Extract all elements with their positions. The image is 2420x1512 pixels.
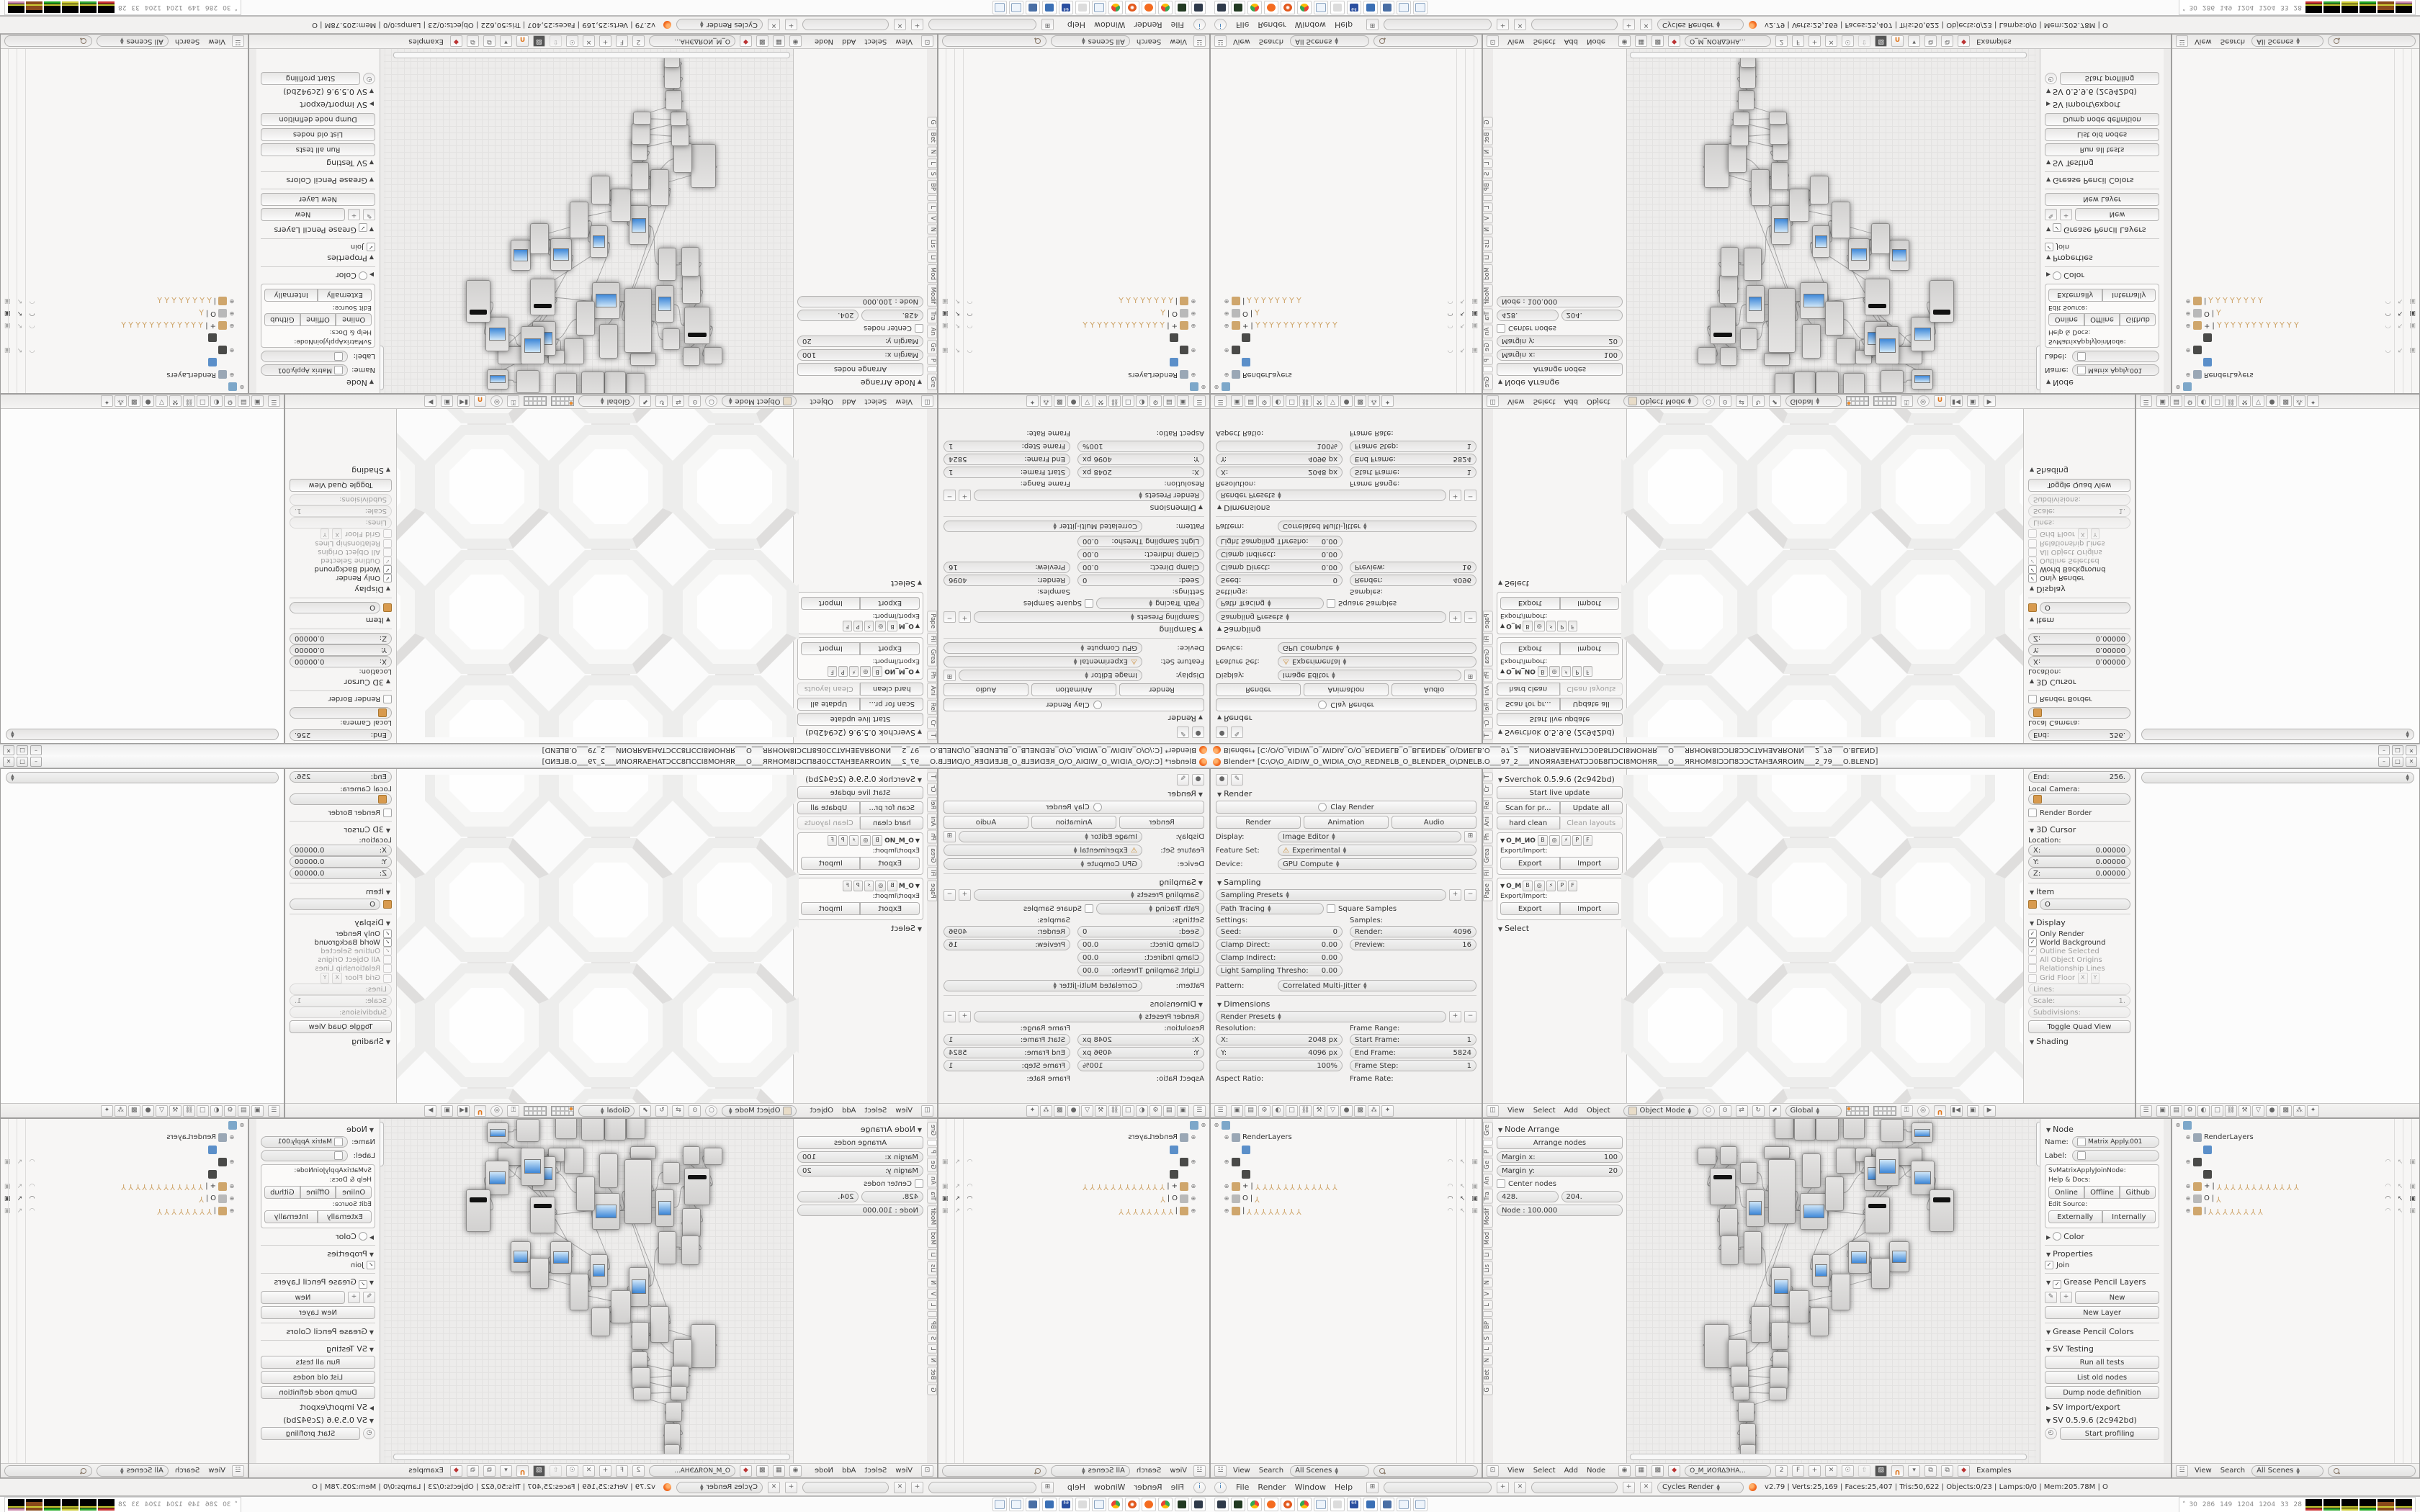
pin-icon[interactable]: ☉ (1842, 1465, 1854, 1477)
hide-icon[interactable]: ◠ (2384, 1207, 2392, 1215)
render-layers-tab[interactable]: ▤ (1163, 1105, 1175, 1117)
lock-icon[interactable]: ⊞ (1464, 831, 1476, 842)
info-menus[interactable]: FileRenderWindowHelp (1059, 20, 1188, 30)
hard-clean-button[interactable]: hard clean (1497, 816, 1560, 829)
pin-icon[interactable]: ☉ (566, 1465, 578, 1477)
world-tab[interactable]: ◐ (2197, 1105, 2210, 1117)
expand-icon[interactable]: ⊕ (1191, 1134, 1196, 1140)
tool-tab-L[interactable]: L (1483, 202, 1493, 212)
outliner-row[interactable] (1, 332, 248, 344)
graph-node[interactable] (624, 1159, 652, 1224)
taskbar-icon-image-viewer[interactable] (1363, 1498, 1378, 1511)
graph-node[interactable] (682, 1208, 701, 1237)
node-label-field[interactable] (2072, 1150, 2159, 1161)
delete-scene-button[interactable]: ✕ (1640, 1482, 1652, 1493)
resolution-x-field[interactable]: X:2048 px (1077, 1034, 1204, 1045)
audio-button[interactable]: Audio (944, 816, 1028, 829)
physics-tab[interactable]: ✦ (1381, 396, 1394, 408)
expand-icon[interactable]: ⊕ (1201, 1122, 1206, 1128)
local-camera-select[interactable] (290, 793, 392, 805)
fake-user-button[interactable]: F (616, 36, 628, 48)
hide-icon[interactable]: ◠ (2384, 298, 2392, 305)
render-opengl-anim-icon[interactable]: ▶ (1984, 396, 1996, 408)
outliner-header[interactable]: ☳ View Search All Scenes▲▼ (938, 35, 1209, 49)
hard-clean-button[interactable]: hard clean (1497, 683, 1560, 696)
add-layout-button[interactable]: + (911, 1482, 923, 1493)
add-scene-button[interactable]: + (785, 1482, 797, 1493)
editor-type-icon[interactable]: ☳ (2176, 1465, 2188, 1477)
tray-expand-icon[interactable]: ˄ (2182, 4, 2186, 12)
graph-node[interactable] (671, 1386, 687, 1400)
tool-tab-L[interactable]: L (927, 158, 937, 168)
restrict-icons[interactable]: ◠↖▣ (1446, 347, 1482, 354)
maximize-button[interactable]: □ (17, 745, 28, 755)
all-object-origins-checkbox[interactable]: All Object Origins (290, 548, 392, 557)
export-button[interactable]: Export (1500, 642, 1560, 655)
outliner-row[interactable]: ⊕◠↖▣ (1211, 344, 1482, 356)
snap-magnet-icon[interactable]: U (474, 1105, 486, 1117)
constraints-tab[interactable]: ⛓ (1299, 396, 1312, 408)
viewport-shading-icon[interactable]: ○ (705, 1105, 717, 1117)
properties-header[interactable]: ☰ ▣▤⚙◐□⛓⚒▽●▩⁂✦ (1211, 395, 1482, 409)
copy-icon[interactable]: ⧉ (483, 1465, 496, 1477)
render-panel-header[interactable]: ▼Render (1217, 714, 1475, 723)
graph-node[interactable] (1698, 1148, 1716, 1165)
remove-preset-button[interactable]: − (944, 889, 956, 901)
manipulator-translate-icon[interactable]: ⇄ (672, 1105, 684, 1117)
clean-layouts-button[interactable]: Clean layouts (1560, 816, 1623, 829)
menu-window[interactable]: Window (1092, 20, 1127, 30)
edit-internally-button[interactable]: Internally (2102, 289, 2156, 302)
item-panel-header[interactable]: ▼Item (2030, 887, 2129, 896)
cursor-z-field[interactable]: Z:0.00000 (2028, 868, 2130, 879)
object-tab[interactable]: □ (1286, 396, 1298, 408)
gp-layers-panel-header[interactable]: ▼✓Grease Pencil Layers (2046, 1277, 2158, 1289)
scan-for-props-button[interactable]: Scan for pr... (861, 801, 924, 814)
node-editor[interactable]: GrePGeAnTraModifModLiLisNVLBPSLNBetG ▼No… (248, 34, 938, 394)
grid-floor-checkbox[interactable]: Grid FloorXY (2028, 528, 2130, 539)
restrict-icons[interactable]: ◠↖▣ (1, 298, 36, 305)
delete-scene-button[interactable]: ✕ (768, 1482, 780, 1493)
outliner-row[interactable]: ⊕ (2172, 381, 2419, 393)
unlink-tree-button[interactable]: ✕ (1825, 36, 1837, 48)
unlink-tree-button[interactable]: ✕ (583, 1465, 595, 1477)
graph-node[interactable] (1832, 202, 1850, 238)
outliner-row[interactable]: ⊕RenderLayers (1, 1131, 248, 1143)
outliner-row[interactable]: ⊕|YYYYYYYY◠↖▣ (938, 295, 1209, 307)
graph-node[interactable] (1865, 1197, 1890, 1233)
pivot-icon[interactable]: ⊙ (1719, 396, 1731, 408)
preview-samples-field[interactable]: Preview:16 (1350, 562, 1476, 573)
viewer-icon[interactable]: ▨ (1875, 1465, 1887, 1477)
render-layers-tab[interactable]: ▤ (1245, 1105, 1257, 1117)
edit-internally-button[interactable]: Internally (264, 289, 318, 302)
render-opengl-anim-icon[interactable]: ▶ (424, 396, 436, 408)
node-scale-field[interactable]: Node : 100.000 (1497, 1205, 1623, 1216)
expand-icon[interactable]: ⊕ (2185, 323, 2191, 329)
graph-node[interactable] (1733, 112, 1749, 126)
outliner-row[interactable]: ⊕O|Y◠↖▣ (938, 1192, 1209, 1205)
search-input[interactable] (4, 36, 92, 48)
tool-tab-Modif[interactable]: Modif (1483, 1205, 1493, 1228)
screen-layout-icon[interactable]: ⊞ (1366, 19, 1379, 31)
menu-help[interactable]: Help (1332, 20, 1355, 30)
outliner-search-menu[interactable]: Search (173, 1467, 202, 1475)
menu-help[interactable]: Help (1332, 1482, 1355, 1492)
graph-node[interactable] (671, 1366, 689, 1387)
title-bar[interactable]: Blender* [C:\O\O_AIDIW_O_WIDIA_O\O_REDNE… (1210, 756, 2420, 768)
tree-name-field[interactable]: O_M_ИOЯΔЭHA... (1685, 1465, 1771, 1477)
system-monitor-widget[interactable]: ˄ 30286149120412043328 (4, 1497, 241, 1512)
graph-node[interactable] (704, 347, 722, 364)
physics-tab[interactable]: ✦ (2307, 396, 2319, 408)
restrict-icons[interactable]: ◠↖▣ (1, 347, 36, 354)
menu-object[interactable]: Object (807, 397, 835, 405)
tool-tab-Lis[interactable]: Lis (1483, 236, 1493, 251)
search-input[interactable] (2328, 36, 2416, 48)
tool-tab-Ge[interactable]: Ge (1483, 340, 1493, 354)
texture-tab[interactable]: ▩ (1354, 1105, 1366, 1117)
tool-tab-Mod[interactable]: Mod (927, 1229, 937, 1248)
arrange-nodes-button[interactable]: Arrange nodes (1497, 363, 1623, 376)
tool-tabs-3d[interactable]: TCrRelAniPhGreaFilPape (926, 769, 937, 1103)
texture-tree-icon[interactable]: ▩ (1652, 36, 1664, 48)
arrange-value-2[interactable]: 204. (797, 310, 859, 321)
taskbar-icon-calculator[interactable] (1026, 1, 1040, 14)
tool-tab-Gre[interactable]: Gre (1483, 374, 1493, 390)
gp-colors-panel-header[interactable]: ▼Grease Pencil Colors (2046, 176, 2158, 185)
snap-mode-select[interactable]: ▾ (500, 36, 512, 48)
resolution-x-field[interactable]: X:2048 px (1216, 467, 1343, 478)
graph-node[interactable] (555, 373, 577, 393)
margin-x-field[interactable]: Margin x:100 (797, 349, 923, 361)
outliner-row[interactable]: ⊕ (1, 381, 248, 393)
material-tab[interactable]: ● (142, 1105, 154, 1117)
expand-icon[interactable]: ⊕ (1191, 1207, 1196, 1214)
manipulator-translate-icon[interactable]: ⇄ (672, 396, 684, 408)
snap-magnet-icon[interactable]: U (1891, 1465, 1904, 1477)
graph-node[interactable] (1881, 370, 1904, 393)
sv-version-panel-header[interactable]: ▼SV 0.5.9.6 (2c942bd) (262, 87, 374, 96)
clay-render-button[interactable]: Clay Render (944, 801, 1204, 814)
hide-icon[interactable]: ◠ (1446, 1183, 1454, 1190)
search-input[interactable] (2328, 1465, 2416, 1477)
cursor-z-field[interactable]: Z:0.00000 (290, 868, 392, 879)
node-arrange-panel-header[interactable]: ▼Node Arrange (799, 1125, 922, 1134)
outliner-row[interactable] (1, 1143, 248, 1156)
outliner-view-menu[interactable]: View (206, 1467, 228, 1475)
expand-icon[interactable]: ⊕ (1224, 372, 1229, 378)
maximize-button[interactable]: □ (17, 757, 28, 767)
taskbar-icon-volume[interactable] (1330, 1498, 1345, 1511)
sverchok-panel-header[interactable]: ▼Sverchok 0.5.9.6 (2c942bd) (1498, 775, 1621, 784)
graph-node[interactable] (1710, 307, 1736, 344)
lock-icon[interactable]: ⚿ (1901, 1105, 1913, 1117)
tool-tabs-3d[interactable]: TCrRelAniPhGreaFilPape (1483, 769, 1494, 1103)
graph-node[interactable] (581, 1119, 604, 1140)
restrict-icons[interactable]: ◠↖▣ (938, 298, 974, 305)
graph-node[interactable] (1738, 1402, 1754, 1422)
graph-node[interactable] (1770, 123, 1788, 145)
graph-node[interactable] (1704, 1324, 1729, 1368)
bake-button[interactable]: B (1523, 621, 1533, 631)
outliner-row[interactable] (2172, 1143, 2419, 1156)
render-opengl-icon[interactable]: ▣ (441, 396, 453, 408)
engine-select[interactable]: Cycles Render▲▼ (676, 19, 763, 31)
world-background-checkbox[interactable]: ✓World Background (2028, 938, 2130, 947)
arrange-value-2[interactable]: 204. (1561, 310, 1623, 321)
hide-icon[interactable]: ◠ (966, 1183, 974, 1190)
end-frame-field[interactable]: End Frame:5824 (1350, 454, 1476, 465)
grid-scale-field[interactable]: Scale:1. (290, 505, 392, 517)
expand-icon[interactable]: ⊕ (239, 1122, 245, 1128)
square-samples-checkbox[interactable]: Square Samples (1327, 904, 1397, 913)
outliner-row[interactable] (1, 1168, 248, 1180)
compositing-tree-icon[interactable]: ▦ (1635, 1465, 1647, 1477)
integrator-select[interactable]: Path Tracing▲▼ (1096, 903, 1204, 914)
graph-node[interactable] (516, 1119, 539, 1142)
hide-icon[interactable]: ◠ (966, 1207, 974, 1215)
hard-clean-button[interactable]: hard clean (861, 816, 924, 829)
add-scene-button[interactable]: + (1623, 19, 1635, 31)
tool-tab-active[interactable] (1483, 366, 1493, 372)
graph-node[interactable] (591, 176, 610, 204)
graph-node[interactable] (1746, 1189, 1765, 1227)
tool-tab-Bet[interactable]: Bet (1483, 129, 1493, 145)
expand-icon[interactable]: ⊕ (2185, 1158, 2191, 1165)
tool-tab-Lis[interactable]: Lis (927, 236, 937, 251)
animation-button[interactable]: Animation (1031, 683, 1116, 696)
outliner-header[interactable]: ☳ View Search All Scenes▲▼ (2172, 1463, 2419, 1477)
render-icon[interactable]: ▣ (2408, 1207, 2416, 1215)
expand-icon[interactable]: ⊕ (1224, 1158, 1229, 1165)
scene-tab[interactable]: ⚙ (1149, 396, 1162, 408)
tool-tab-Mod[interactable]: Mod (927, 264, 937, 283)
github-button[interactable]: Github (264, 1186, 300, 1199)
color-panel-header[interactable]: ▶Color (2046, 271, 2158, 280)
snap-magnet-icon[interactable]: U (1934, 1105, 1946, 1117)
render-icon[interactable]: ▣ (1471, 298, 1479, 305)
run-all-tests-button[interactable]: Run all tests (2045, 1356, 2159, 1369)
properties-header[interactable]: ☰ ▣▤⚙◐□⛓⚒▽●▩⁂✦ (1, 1103, 284, 1117)
editor-type-icon[interactable]: ◫ (921, 396, 933, 408)
render-panel-header[interactable]: ▼Render (1217, 789, 1475, 798)
list-old-nodes-button[interactable]: List old nodes (2045, 1371, 2159, 1384)
animation-button[interactable]: Animation (1031, 816, 1116, 829)
animation-button[interactable]: Animation (1304, 816, 1389, 829)
cursor-panel-header[interactable]: ▼3D Cursor (2030, 678, 2129, 687)
shading-panel-header[interactable]: ▼Shading (2030, 1037, 2129, 1046)
toggle-quad-view-button[interactable]: Toggle Quad View (2028, 479, 2130, 492)
render-samples-field[interactable]: Render:4096 (944, 926, 1070, 937)
restrict-icons[interactable]: ◠↖▣ (938, 347, 974, 354)
taskbar-icon-notepad[interactable] (1314, 1498, 1328, 1511)
outliner-row[interactable]: ⊕+|YYYYYYYYYYYY◠↖▣ (938, 320, 1209, 332)
start-frame-field[interactable]: Start Frame:1 (1350, 1034, 1476, 1045)
data-tab[interactable]: ▽ (156, 396, 168, 408)
show-icon[interactable]: ◎ (1549, 666, 1560, 677)
minimize-button[interactable]: – (2378, 757, 2390, 767)
world-tab[interactable]: ◐ (2197, 396, 2210, 408)
tool-tab-Pape[interactable]: Pape (927, 881, 937, 901)
editor-type-icon[interactable]: ☳ (1193, 1465, 1206, 1477)
outliner-row[interactable]: ⊕|YYYYYYYY◠↖▣ (1211, 295, 1482, 307)
bake-button[interactable]: B (872, 835, 882, 846)
menu-view[interactable]: View (893, 397, 915, 405)
viewport-shading-icon[interactable]: ○ (705, 396, 717, 408)
shading-panel-header[interactable]: ▼Shading (2030, 466, 2129, 475)
mode-select[interactable]: Object Mode▲▼ (722, 396, 797, 408)
tool-tab-Ani[interactable]: Ani (927, 683, 937, 699)
hide-icon[interactable]: ◠ (1446, 310, 1454, 318)
hide-icon[interactable]: ◠ (28, 347, 36, 354)
expand-icon[interactable]: ⊕ (229, 347, 235, 354)
graph-node[interactable] (1769, 1387, 1787, 1400)
expand-icon[interactable]: ⊕ (2175, 384, 2181, 390)
outliner-row[interactable]: ⊕RenderLayers (938, 369, 1209, 381)
margin-y-field[interactable]: Margin y:20 (1497, 336, 1623, 347)
taskbar-icon-floppy-64[interactable]: 64 (1059, 1, 1073, 14)
tool-tab-Ge[interactable]: Ge (927, 340, 937, 354)
tool-tab-T[interactable]: T (1483, 731, 1493, 740)
show-icon[interactable]: ◎ (1534, 621, 1545, 631)
editor-type-icon[interactable]: ☳ (232, 36, 244, 48)
arrange-value-1[interactable]: 428. (862, 1191, 924, 1202)
editor-type-icon[interactable]: ☳ (1214, 36, 1227, 48)
particles-tab[interactable]: ⁂ (2293, 396, 2305, 408)
mode-select[interactable]: Object Mode▲▼ (722, 1105, 797, 1117)
graph-node[interactable] (1836, 338, 1856, 364)
world-tab[interactable]: ◐ (210, 1105, 223, 1117)
scene-tab[interactable]: ⚙ (2184, 1105, 2196, 1117)
list-old-nodes-button[interactable]: List old nodes (2045, 128, 2159, 141)
animation-button[interactable]: Animation (1304, 683, 1389, 696)
tool-tab-BP[interactable]: BP (927, 1318, 937, 1332)
expand-icon[interactable]: ⊕ (1191, 1158, 1196, 1165)
tool-tab-P[interactable]: P (1483, 356, 1493, 365)
pattern-select[interactable]: Correlated Multi-Jitter▲▼ (944, 980, 1142, 991)
graph-node[interactable] (1794, 372, 1816, 393)
device-select[interactable]: GPU Compute▲▼ (1278, 642, 1476, 654)
render-presets[interactable]: Render Presets▲▼ (1216, 490, 1446, 501)
sampling-panel-header[interactable]: ▼Sampling (945, 625, 1203, 634)
graph-node[interactable] (671, 112, 687, 126)
screen-layout-icon[interactable]: ⊞ (1041, 19, 1054, 31)
hide-icon[interactable]: ◠ (28, 1195, 36, 1202)
hard-clean-button[interactable]: hard clean (861, 683, 924, 696)
join-checkbox[interactable]: ✓Join (261, 243, 375, 251)
taskbar-icon-notepad[interactable] (1092, 1, 1106, 14)
show-icon[interactable]: ◎ (860, 835, 871, 846)
properties-header[interactable]: ☰ ▣▤⚙◐□⛓⚒▽●▩⁂✦ (938, 395, 1209, 409)
tool-tab-Ge[interactable]: Ge (1483, 1158, 1493, 1172)
taskbar-icon-system-monitor[interactable] (1214, 1, 1229, 14)
import-button[interactable]: Import (1560, 902, 1620, 915)
world-tab[interactable]: ◐ (1136, 396, 1148, 408)
tool-tab-Pape[interactable]: Pape (1483, 611, 1493, 631)
audio-button[interactable]: Audio (1391, 683, 1476, 696)
info-header[interactable]: i FileRenderWindowHelp ⊞ +✕ +✕ Cycles Re… (0, 16, 1210, 34)
graph-node[interactable] (570, 1274, 588, 1310)
feature-set-select[interactable]: ⚠Experimental▲▼ (1278, 656, 1476, 667)
outliner-row[interactable]: ⊕O|Y◠↖▣ (938, 307, 1209, 320)
graph-node[interactable] (564, 338, 584, 364)
world-tab[interactable]: ◐ (1136, 1105, 1148, 1117)
node-editor-header[interactable]: ⊡ ViewSelectAddNode ◉ ▦ ▩ ◆ O_M_ИOЯΔЭHA.… (1483, 35, 2171, 49)
scene-tab[interactable]: ⚙ (224, 396, 236, 408)
hide-icon[interactable]: ◠ (28, 1207, 36, 1215)
add-icon[interactable]: + (2060, 1292, 2072, 1303)
restrict-icons[interactable]: ◠↖▣ (2384, 347, 2419, 354)
graph-node[interactable] (681, 1236, 699, 1265)
graph-node[interactable] (487, 1122, 508, 1143)
graph-node[interactable] (663, 1162, 680, 1184)
process-icon[interactable]: ⚡ (849, 835, 859, 846)
bake-button[interactable]: B (872, 666, 882, 677)
clamp-direct-field[interactable]: Clamp Direct:0.00 (1077, 562, 1204, 573)
pin-icon[interactable]: ● (1192, 774, 1204, 786)
graph-node[interactable] (1789, 189, 1809, 222)
render-icon[interactable]: ▣ (2408, 1195, 2416, 1202)
arrange-nodes-button[interactable]: Arrange nodes (1497, 1136, 1623, 1149)
clamp-indirect-field[interactable]: Clamp Indirect:0.00 (1216, 952, 1343, 963)
dump-node-definition-button[interactable]: Dump node definition (2045, 113, 2159, 126)
taskbar-icon-spiral-app[interactable] (1281, 1, 1295, 14)
outliner-row[interactable]: ⊕+|YYYYYYYYYYYY◠↖▣ (1211, 320, 1482, 332)
github-button[interactable]: Github (2120, 1186, 2156, 1199)
graph-node[interactable] (704, 1148, 722, 1165)
start-live-update-button[interactable]: Start live update (1497, 786, 1623, 799)
outliner-row[interactable]: ⊕|YYYYYYYY◠↖▣ (938, 1205, 1209, 1217)
gp-layers-panel-header[interactable]: ▼✓Grease Pencil Layers (262, 223, 374, 235)
editor-type-icon[interactable]: ☰ (2140, 396, 2152, 408)
p-button[interactable]: P (853, 621, 863, 631)
export-button[interactable]: Export (861, 642, 920, 655)
delete-layout-button[interactable]: ✕ (894, 1482, 906, 1493)
close-button[interactable]: ✕ (3, 745, 14, 755)
graph-node[interactable] (1843, 1119, 1865, 1139)
graph-node[interactable] (1720, 1146, 1737, 1165)
taskbar-icon-notepad-3[interactable] (992, 1498, 1007, 1511)
sv-version-panel-header[interactable]: ▼SV 0.5.9.6 (2c942bd) (2046, 1416, 2158, 1425)
material-tab[interactable]: ● (1067, 396, 1080, 408)
graph-node[interactable] (629, 205, 649, 245)
tool-tab-T[interactable]: T (927, 772, 937, 781)
arrange-value-2[interactable]: 204. (1561, 1191, 1623, 1202)
expand-icon[interactable]: ⊕ (229, 1207, 235, 1214)
scene-tab[interactable]: ⚙ (2184, 396, 2196, 408)
dimensions-panel-header[interactable]: ▼Dimensions (1217, 503, 1475, 513)
graph-node[interactable] (1812, 225, 1830, 258)
taskbar-icon-chrome[interactable] (1158, 1498, 1173, 1511)
tool-tab-Cr[interactable]: Cr (927, 783, 937, 795)
menu-select[interactable]: Select (862, 1467, 889, 1475)
view3d-menus[interactable]: ViewSelectAddObject (1503, 1107, 1619, 1115)
graph-node[interactable] (590, 1254, 608, 1287)
tool-icon[interactable]: ✎ (1231, 774, 1243, 786)
remove-preset-button[interactable]: − (1464, 889, 1476, 901)
tool-tab-BP[interactable]: BP (1483, 180, 1493, 194)
outliner-view-menu[interactable]: View (206, 37, 228, 45)
outliner-view-menu[interactable]: View (2192, 37, 2214, 45)
graph-node[interactable] (1740, 328, 1757, 350)
fake-user-button[interactable]: F (1792, 36, 1804, 48)
graph-node[interactable] (1810, 176, 1829, 204)
physics-tab[interactable]: ✦ (1026, 396, 1039, 408)
add-layout-button[interactable]: + (1497, 19, 1509, 31)
tool-tab-Tra[interactable]: Tra (927, 308, 937, 323)
world-background-checkbox[interactable]: ✓World Background (290, 938, 392, 947)
